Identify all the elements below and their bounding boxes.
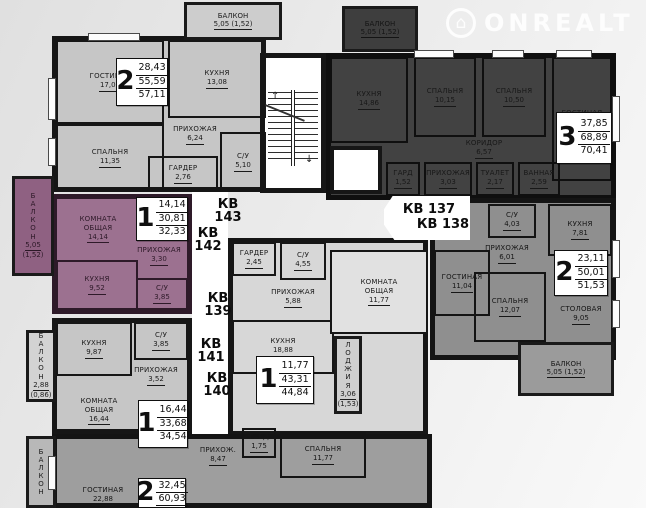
apartment-room-count: 3: [558, 126, 576, 149]
room-label: ГАРДЕР: [169, 164, 198, 173]
room-area: 11,04: [451, 282, 473, 292]
room-area: 5,88: [284, 297, 302, 307]
kv-label-line: КВ: [200, 292, 236, 305]
room-label: С/У: [506, 211, 518, 220]
kv-label: КВ143: [210, 198, 246, 225]
balcony-area: 3,06: [340, 390, 356, 400]
balcony-label: БАЛКОН: [551, 360, 582, 368]
room-area: 11,77: [368, 296, 390, 306]
room-label: СПАЛЬНЯ: [492, 297, 529, 306]
room: КУХНЯ7,81: [548, 204, 612, 256]
balcony-label: БАЛКОН: [37, 448, 46, 496]
room-label: КУХНЯ: [270, 337, 295, 346]
area-value: 51,53: [575, 280, 606, 292]
room: СПАЛЬНЯ10,50: [482, 57, 546, 137]
balcony-label: БАЛКОН: [37, 332, 46, 380]
loggia: ЛОДЖИЯ3,06(1,53): [334, 336, 362, 414]
room-area: 5,10: [234, 161, 252, 171]
room-area: 3,85: [153, 293, 171, 303]
room-label: ГАРД: [393, 169, 413, 178]
room-area: 14,14: [87, 233, 109, 243]
area-value: 37,85: [578, 118, 609, 131]
kv-label: КВ142: [190, 227, 226, 254]
room: ПРИХОЖ.8,47: [188, 442, 248, 470]
area-value: 34,54: [157, 431, 188, 443]
balcony-area: (1,53): [337, 400, 358, 409]
room-area: 6,01: [498, 253, 516, 263]
room: ПРИХОЖАЯ3,03: [424, 162, 472, 196]
window: [48, 456, 56, 490]
room: ВАННАЯ2,59: [518, 162, 560, 196]
balcony-area: 5,05 (1,52): [361, 28, 400, 38]
stairs-divider: [291, 90, 295, 166]
window: [612, 240, 620, 278]
room: КОРИДОР6,57: [424, 138, 544, 160]
apartment-room-count: 2: [136, 481, 154, 504]
balcony-area: (0,86): [30, 391, 51, 400]
area-value: 44,84: [279, 387, 310, 399]
kv-label-line: КВ 137: [398, 203, 460, 216]
room: С/У4,55: [280, 242, 326, 280]
apartment-areas: 14,1430,8132,33: [156, 199, 187, 238]
balcony: БАЛКОН5,05(1,52): [12, 176, 54, 276]
room-area: 3,52: [147, 375, 165, 385]
apartment-areas: 16,4433,6834,54: [157, 404, 188, 443]
kv-label-line: 143: [210, 211, 246, 224]
room-area: 3,85: [152, 340, 170, 350]
room: ПРИХОЖАЯ5,88: [260, 284, 326, 312]
room-area: 6,57: [475, 148, 493, 158]
apartment-room-count: 1: [136, 207, 154, 230]
room-area: 9,52: [88, 284, 106, 294]
area-value: 30,81: [156, 213, 187, 226]
room-label: КУХНЯ: [81, 339, 106, 348]
stairs-up-arrow-icon: ↑: [271, 92, 279, 102]
kv-label: КВ140: [199, 372, 235, 399]
apartment-room-count: 1: [137, 412, 155, 435]
kv-label: КВ 137: [398, 203, 460, 216]
room-label: КУХНЯ: [204, 69, 229, 78]
room: ГАРД1,75: [242, 428, 276, 458]
area-value: 43,31: [279, 374, 310, 387]
area-value: 16,44: [157, 404, 188, 417]
room: С/У3,85: [134, 322, 188, 360]
room-label: С/У: [156, 284, 168, 293]
room-area: 7,81: [571, 229, 589, 239]
balcony-area: (1,52): [22, 251, 43, 260]
room-area: 1,75: [250, 442, 268, 452]
room-area: 14,86: [358, 99, 380, 109]
apartment-info-box: 114,1430,8132,33: [136, 197, 188, 241]
kv-label-line: КВ: [199, 372, 235, 385]
room-area: 9,05: [572, 314, 590, 324]
room-area: 1,52: [394, 178, 412, 188]
room-area: 11,77: [312, 454, 334, 464]
room: СПАЛЬНЯ10,15: [414, 57, 476, 137]
apartment-areas: 37,8568,8970,41: [578, 118, 609, 157]
balcony: БАЛКОН5,05 (1,52): [518, 342, 614, 396]
room: КУХНЯ9,87: [56, 322, 132, 376]
stairs-down-arrow-icon: ↓: [305, 155, 313, 165]
kv-label-line: 142: [190, 240, 226, 253]
room-label: ВАННАЯ: [524, 169, 555, 178]
room: ГАРД1,52: [386, 162, 420, 196]
floor-plan: ГОСТИНАЯ17,08КУХНЯ13,08СПАЛЬНЯ11,35ПРИХО…: [0, 0, 646, 508]
room-area: 10,15: [434, 96, 456, 106]
balcony-label: БАЛКОН: [218, 12, 249, 20]
area-value: 28,43: [136, 62, 167, 75]
room-area: 2,45: [245, 258, 263, 268]
room-label: ПРИХОЖАЯ: [426, 169, 470, 178]
room-label: ПРИХОЖАЯ: [271, 288, 315, 297]
balcony-area: 5,05: [25, 241, 41, 251]
room: ГАРДЕР2,76: [148, 156, 218, 192]
kv-label-line: КВ: [193, 338, 229, 351]
room-area: 16,44: [88, 415, 110, 425]
area-value: 60,93: [156, 493, 187, 506]
room-area: 13,08: [206, 78, 228, 88]
kv-label-line: КВ: [210, 198, 246, 211]
kv-label-line: КВ: [190, 227, 226, 240]
room-area: 22,88: [92, 495, 114, 505]
room: КОМНАТА ОБЩАЯ11,77: [330, 250, 428, 334]
window: [414, 50, 454, 58]
room-label: КОМНАТА ОБЩАЯ: [353, 278, 405, 296]
room: С/У3,85: [136, 278, 188, 310]
room-label: КОМНАТА ОБЩАЯ: [72, 215, 124, 233]
room: ГОСТИНАЯ22,88: [60, 484, 146, 508]
kv-label-line: 140: [199, 385, 235, 398]
room: ТУАЛЕТ2,17: [476, 162, 514, 196]
kv-label: КВ141: [193, 338, 229, 365]
kv-label: КВ139: [200, 292, 236, 319]
balcony-label: БАЛКОН: [29, 192, 38, 240]
area-value: 11,77: [279, 360, 310, 373]
kv-label-line: 141: [193, 351, 229, 364]
apartment-areas: 23,1150,0151,53: [575, 253, 606, 292]
room-label: С/У: [297, 251, 309, 260]
room: СПАЛЬНЯ11,77: [280, 432, 366, 478]
onrealt-watermark: ⌂ ONREALT: [446, 8, 634, 38]
apartment-info-box: 116,4433,6834,54: [138, 400, 188, 448]
room-label: ПРИХОЖАЯ: [485, 244, 529, 253]
room-label: ГАРД: [249, 433, 269, 442]
room-label: КОРИДОР: [466, 139, 503, 148]
room: СПАЛЬНЯ12,07: [474, 272, 546, 342]
room-label: СПАЛЬНЯ: [496, 87, 533, 96]
room-label: ТУАЛЕТ: [481, 169, 510, 178]
apartment-room-count: 2: [555, 261, 573, 284]
window: [612, 300, 620, 328]
room-area: 4,03: [503, 220, 521, 230]
room: ПРИХОЖАЯ3,30: [130, 243, 188, 269]
window: [48, 138, 56, 166]
apartment-info-box: 337,8568,8970,41: [556, 112, 612, 164]
room-area: 10,50: [503, 96, 525, 106]
balcony: БАЛКОН2,88(0,86): [26, 330, 56, 402]
apartment-info-box: 232,4560,93: [138, 478, 186, 508]
room-label: С/У: [237, 152, 249, 161]
apartment-room-count: 2: [116, 70, 134, 93]
room-label: КУХНЯ: [356, 90, 381, 99]
room: КОМНАТА ОБЩАЯ14,14: [58, 200, 138, 258]
area-value: 55,59: [136, 76, 167, 89]
onrealt-house-icon: ⌂: [446, 8, 476, 38]
apartment-info-box: 228,4355,5957,11: [116, 58, 168, 106]
room-label: СПАЛЬНЯ: [427, 87, 464, 96]
area-value: 57,11: [136, 89, 167, 101]
room-label: ГОСТИНАЯ: [83, 486, 124, 495]
window: [612, 96, 620, 142]
window: [88, 33, 140, 41]
room: КОМНАТА ОБЩАЯ16,44: [58, 390, 140, 432]
room-label: ПРИХОЖ.: [200, 446, 236, 455]
balcony-label: БАЛКОН: [365, 20, 396, 28]
room-label: ГАРДЕР: [240, 249, 269, 258]
room-label: ПРИХОЖАЯ: [173, 125, 217, 134]
balcony-area: 5,05 (1,52): [547, 368, 586, 378]
apartment-areas: 32,4560,93: [156, 480, 187, 507]
room: ПРИХОЖАЯ6,24: [166, 114, 224, 156]
area-value: 33,68: [157, 418, 188, 431]
area-value: 70,41: [578, 145, 609, 157]
area-value: 68,89: [578, 132, 609, 145]
room: КУХНЯ9,52: [56, 260, 138, 310]
area-value: 50,01: [575, 267, 606, 280]
room-label: С/У: [155, 331, 167, 340]
area-value: 14,14: [156, 199, 187, 212]
room-label: КОМНАТА ОБЩАЯ: [73, 397, 125, 415]
room-area: 2,59: [530, 178, 548, 188]
room-area: 11,35: [99, 157, 121, 167]
room-label: КУХНЯ: [84, 275, 109, 284]
room-label: ПРИХОЖАЯ: [134, 366, 178, 375]
room-area: 9,87: [85, 348, 103, 358]
apartment-room-count: 1: [259, 368, 277, 391]
room-area: 3,03: [439, 178, 457, 188]
room-label: СПАЛЬНЯ: [305, 445, 342, 454]
apartment-info-box: 111,7743,3144,84: [256, 356, 314, 404]
room: С/У4,03: [488, 204, 536, 238]
balcony-area: 5,05 (1,52): [214, 20, 253, 30]
apartment-areas: 28,4355,5957,11: [136, 62, 167, 101]
room-label: ПРИХОЖАЯ: [137, 246, 181, 255]
room-label: СТОЛОВАЯ: [560, 305, 602, 314]
area-value: 32,45: [156, 480, 187, 493]
balcony-area: 2,88: [33, 381, 49, 391]
balcony: БАЛКОН5,05 (1,52): [342, 6, 418, 52]
room: КУХНЯ13,08: [168, 40, 266, 118]
window: [48, 78, 56, 120]
elevator-shaft: [330, 146, 382, 194]
room: ГАРДЕР2,45: [232, 242, 276, 276]
kv-label-line: КВ 138: [412, 218, 474, 231]
room-area: 12,07: [499, 306, 521, 316]
room-area: 3,30: [150, 255, 168, 265]
kv-label-line: 139: [200, 305, 236, 318]
room: С/У5,10: [220, 132, 266, 192]
room: КУХНЯ14,86: [330, 57, 408, 143]
window: [556, 50, 592, 58]
kv-label: КВ 138: [412, 218, 474, 231]
room-area: 4,55: [294, 260, 312, 270]
room-area: 6,24: [186, 134, 204, 144]
room-area: 2,76: [174, 173, 192, 183]
apartment-areas: 11,7743,3144,84: [279, 360, 310, 399]
room-area: 2,17: [486, 178, 504, 188]
room-area: 8,47: [209, 455, 227, 465]
area-value: 23,11: [575, 253, 606, 266]
room-label: КУХНЯ: [567, 220, 592, 229]
apartment-info-box: 223,1150,0151,53: [554, 250, 608, 296]
area-value: 32,33: [156, 226, 187, 238]
balcony-label: ЛОДЖИЯ: [344, 341, 353, 389]
window: [492, 50, 524, 58]
onrealt-watermark-text: ONREALT: [484, 9, 634, 37]
room-label: СПАЛЬНЯ: [92, 148, 129, 157]
room: ПРИХОЖАЯ3,52: [126, 362, 186, 390]
balcony: БАЛКОН5,05 (1,52): [184, 2, 282, 40]
